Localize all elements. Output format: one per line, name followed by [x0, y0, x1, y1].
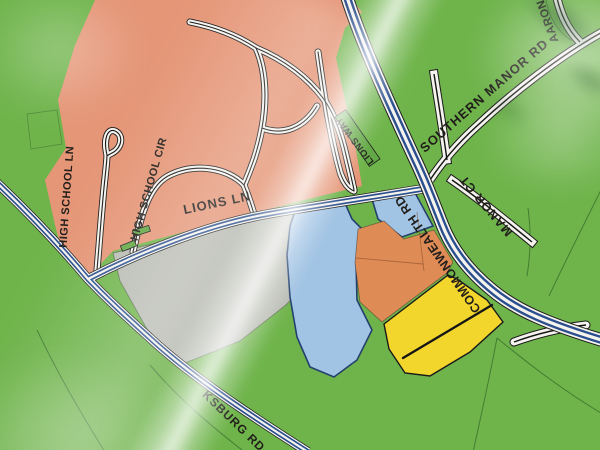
zoning-map: LIONS LN HIGH SCHOOL LN HIGH SCHOOL CIR … [0, 0, 600, 450]
map-photo: LIONS LN HIGH SCHOOL LN HIGH SCHOOL CIR … [0, 0, 600, 450]
